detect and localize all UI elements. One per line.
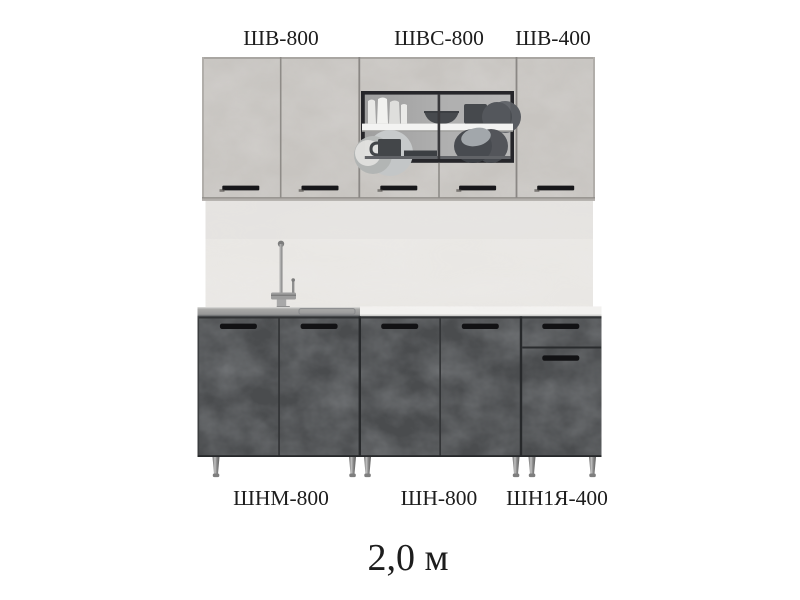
svg-text:ШВ-400: ШВ-400 xyxy=(515,26,590,50)
svg-text:ШН1Я-400: ШН1Я-400 xyxy=(506,486,608,510)
svg-text:ШВ-800: ШВ-800 xyxy=(243,26,318,50)
svg-text:ШВС-800: ШВС-800 xyxy=(394,26,484,50)
svg-text:ШН-800: ШН-800 xyxy=(401,486,478,510)
svg-text:ШНМ-800: ШНМ-800 xyxy=(233,486,329,510)
svg-text:2,0 м: 2,0 м xyxy=(367,537,448,579)
